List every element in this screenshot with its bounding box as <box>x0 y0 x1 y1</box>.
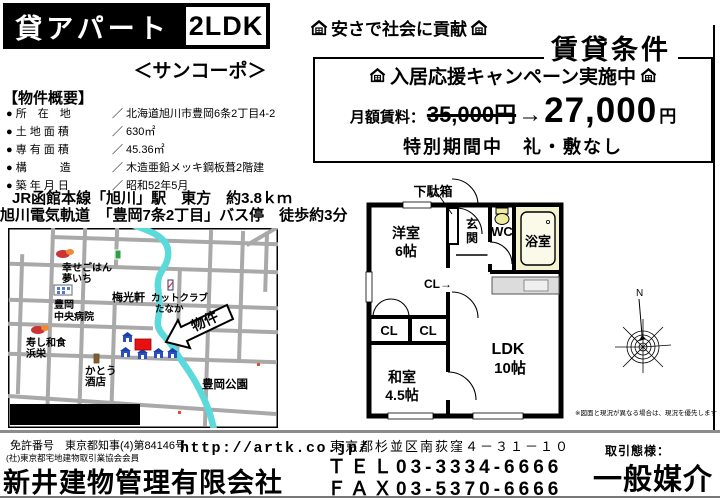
house-icon <box>369 68 386 83</box>
map-label-hospital-b: 中央病院 <box>54 310 94 323</box>
overview-row: ● 構 造／ 木造亜鉛メッキ鋼板葺2階建 <box>6 159 306 177</box>
japanese-room-label: 和室 <box>388 369 416 385</box>
license-number: 免許番号 東京都知事(4)第84146号 <box>10 437 186 453</box>
map-caption: 現地案内図 <box>37 407 112 422</box>
building-name: ＜サンコーポ＞ <box>110 56 290 83</box>
rent-label: 月額賃料： <box>350 106 425 127</box>
slogan-text: 安さで社会に貢献 <box>331 15 467 40</box>
overview-row-value: ／ 木造亜鉛メッキ鋼板葺2階建 <box>112 159 264 177</box>
map-dot <box>257 363 260 366</box>
floorplan-disclaimer: ※図面と現況が異なる場合は、現況を優先します <box>575 407 717 417</box>
house-icon <box>310 20 328 36</box>
map-label-sushi-b: 浜栄 <box>26 347 47 360</box>
campaign-box: 入居応援キャンペーン実施中 月額賃料： 35,000円 → 27,000 円 特… <box>313 57 713 163</box>
price-unit: 円 <box>659 102 676 127</box>
overview-row: ● 土 地 面 積／ 630㎡ <box>6 123 306 141</box>
rental-type-banner: 貸アパート <box>3 3 182 49</box>
house-icon <box>640 68 657 83</box>
bath-label: 浴室 <box>525 234 551 249</box>
area-map: 幸せごはん 夢いち 豊岡 中央病院 梅光軒 カットクラブ たなか 寿し和食 浜栄… <box>8 228 278 428</box>
japanese-room-size: 4.5帖 <box>385 387 418 403</box>
access-bus: 旭川電気軌道 「豊岡7条2丁目」バス停 徒歩約3分 <box>0 204 348 225</box>
house-icon <box>470 20 488 36</box>
shoe-cabinet <box>448 208 458 244</box>
map-label-salon-a: カットクラブ <box>151 292 209 304</box>
overview-row-value: ／ 630㎡ <box>112 123 155 141</box>
wc-label: WC <box>491 224 513 239</box>
entrance-label2: 関 <box>466 231 478 245</box>
slogan: 安さで社会に貢献 <box>310 15 488 40</box>
ldk-label: LDK <box>492 341 525 358</box>
closet1-label: CL <box>380 323 397 338</box>
overview-row-label: ● 土 地 面 積 <box>6 123 112 141</box>
western-room-size: 6帖 <box>395 243 417 259</box>
closet2-label: CL <box>419 323 436 338</box>
map-label-restaurant1b: 夢いち <box>62 272 92 285</box>
compass-north-label: N <box>636 288 643 299</box>
map-label-ramen: 梅光軒 <box>112 290 145 304</box>
overview-row: ● 専 有 面 積／ 45.36㎡ <box>6 141 306 159</box>
liquor-icon <box>94 354 99 363</box>
floor-plan: 下駄箱 洋室 6帖 玄 関 WC 浴室 CL→ CL CL LDK 10帖 和室… <box>358 172 568 422</box>
old-price: 35,000円 <box>427 97 516 129</box>
map-label-salon-b: たなか <box>155 304 184 315</box>
toilet-icon <box>495 208 509 225</box>
footer-divider-bottom <box>0 496 720 498</box>
kitchen-counter <box>492 277 559 294</box>
property-marker <box>135 339 151 350</box>
overview-row-label: ● 所 在 地 <box>6 105 112 123</box>
footer-divider-top <box>0 430 720 433</box>
compass-rose: N <box>608 285 678 375</box>
map-label-hospital-a: 豊岡 <box>54 298 74 311</box>
rental-conditions-title: 賃貸条件 <box>544 28 678 67</box>
unit-type-box: 2LDK <box>182 3 270 49</box>
overview-row-value: ／ 45.36㎡ <box>112 141 165 159</box>
map-label-liquor-b: 酒店 <box>85 375 106 388</box>
overview-row-label: ● 専 有 面 積 <box>6 141 112 159</box>
price-change-arrow: → <box>518 101 542 129</box>
salon-icon <box>168 280 173 290</box>
company-name: 新井建物管理有限会社 <box>3 461 283 500</box>
entrance-label: 玄 <box>466 216 478 231</box>
map-label-park: 豊岡公園 <box>202 377 248 391</box>
overview-row-value: ／ 北海道旭川市豊岡6条2丁目4-2 <box>112 105 275 123</box>
rent-price-line: 月額賃料： 35,000円 → 27,000 円 <box>350 91 676 131</box>
ldk-size: 10帖 <box>494 359 526 377</box>
map-dot <box>178 411 181 414</box>
shoe-cabinet-label: 下駄箱 <box>413 184 452 199</box>
special-period-note: 特別期間中 礼・敷なし <box>403 133 623 159</box>
right-border-line <box>713 25 715 432</box>
overview-row-label: ● 構 造 <box>6 159 112 177</box>
closet-arrow-label: CL→ <box>424 277 452 291</box>
deal-type: 一般媒介 <box>593 456 713 498</box>
new-price: 27,000 <box>544 91 657 131</box>
map-label-restaurant1: 幸せごはん <box>62 261 112 274</box>
western-room-label: 洋室 <box>392 225 420 241</box>
hospital-icon <box>54 285 72 295</box>
overview-rows: ● 所 在 地／ 北海道旭川市豊岡6条2丁目4-2 ● 土 地 面 積／ 630… <box>6 105 306 195</box>
map-label-sushi-a: 寿し和食 <box>26 336 67 349</box>
marker-icon <box>115 250 121 259</box>
overview-row: ● 所 在 地／ 北海道旭川市豊岡6条2丁目4-2 <box>6 105 306 123</box>
